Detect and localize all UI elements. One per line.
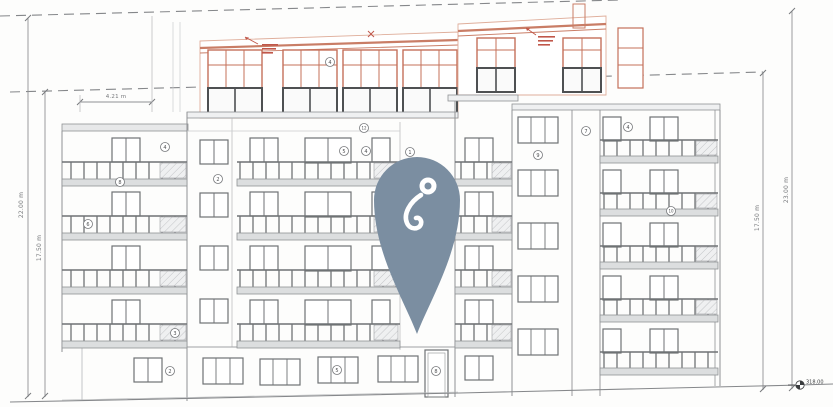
balcony-screen: [160, 163, 186, 178]
balcony-railing: [455, 270, 512, 294]
svg-text:9: 9: [536, 153, 539, 159]
window: [372, 300, 390, 324]
window: [650, 276, 678, 300]
stair-roof-window: [618, 28, 643, 88]
balcony-railing: [62, 270, 187, 294]
dimension-label: 17.50 m: [36, 235, 43, 261]
balcony-screen: [492, 271, 511, 286]
ref-marker: 8: [116, 178, 125, 187]
dimension-right-inner: 17.50 m: [754, 70, 766, 392]
ref-marker: 4: [161, 143, 170, 152]
window: [477, 38, 515, 68]
attic-level-left: [200, 31, 458, 118]
stair-tower: [455, 138, 512, 348]
balcony-screen: [374, 325, 398, 340]
svg-text:4: 4: [626, 125, 629, 131]
ref-marker: 4: [624, 123, 633, 132]
dimension-label: 23.00 m: [783, 177, 790, 203]
balcony-railing: [62, 216, 187, 240]
svg-text:318.00: 318.00: [806, 380, 824, 386]
window: [603, 276, 621, 300]
svg-text:1: 1: [408, 150, 411, 156]
balcony-screen: [696, 194, 717, 208]
window: [378, 356, 418, 382]
dimension-right-outer: 23.00 m: [783, 8, 795, 391]
ref-marker: 10: [667, 207, 676, 216]
window: [112, 138, 140, 162]
ref-marker: 5: [340, 147, 349, 156]
svg-text:8: 8: [118, 180, 121, 186]
window: [403, 50, 457, 88]
window: [283, 50, 337, 88]
window: [200, 140, 228, 164]
svg-text:2: 2: [168, 369, 171, 375]
window: [305, 300, 351, 325]
balcony-railing: [455, 324, 512, 348]
ref-marker: 2: [214, 175, 223, 184]
window: [650, 170, 678, 194]
ref-marker: 1: [406, 148, 415, 157]
window: [200, 299, 228, 323]
window: [477, 68, 515, 92]
balcony-railing: [600, 193, 718, 216]
window: [603, 170, 621, 194]
svg-text:3: 3: [173, 331, 176, 337]
window: [112, 300, 140, 324]
ref-marker: 12: [360, 124, 369, 133]
balcony-screen: [492, 325, 511, 340]
balcony-screen: [696, 141, 717, 155]
balcony-railing: [237, 162, 400, 186]
window: [343, 88, 397, 115]
window: [305, 246, 351, 271]
svg-text:10: 10: [668, 209, 674, 214]
balcony-railing: [600, 352, 718, 375]
balcony-screen: [160, 217, 186, 232]
balcony-railing: [600, 299, 718, 322]
balcony-railing: [237, 270, 400, 294]
attic-level-right: [458, 4, 643, 95]
window: [260, 359, 300, 385]
right-wing: [518, 117, 718, 375]
centre-window-column: [200, 140, 228, 323]
dimension-left-inner: 17.50 m: [36, 89, 48, 399]
window: [203, 358, 243, 384]
ref-marker: 7: [582, 127, 591, 136]
svg-text:6: 6: [86, 222, 89, 228]
balcony-screen: [696, 300, 717, 314]
ground-line: [10, 384, 833, 402]
window: [343, 50, 397, 88]
window: [518, 117, 558, 143]
elevation-drawing: 22.00 m 17.50 m 17.50 m 23.00 m 4.21 m: [0, 0, 833, 407]
left-wing: [62, 138, 187, 348]
window: [283, 88, 337, 115]
balcony-screen: [492, 163, 511, 178]
balcony-railing: [455, 162, 512, 186]
ref-marker: 9: [534, 151, 543, 160]
svg-text:5: 5: [335, 368, 338, 374]
window: [563, 38, 601, 68]
balcony-railing: [600, 140, 718, 163]
elevation-canvas: 22.00 m 17.50 m 17.50 m 23.00 m 4.21 m: [0, 0, 833, 407]
window: [518, 170, 558, 196]
svg-text:4: 4: [163, 145, 166, 151]
window: [250, 300, 278, 324]
window: [372, 138, 390, 162]
window: [250, 138, 278, 162]
window: [465, 300, 493, 324]
window: [518, 276, 558, 302]
svg-text:12: 12: [361, 126, 367, 131]
balcony-railing: [600, 246, 718, 269]
svg-text:8: 8: [434, 369, 437, 375]
svg-text:5: 5: [342, 149, 345, 155]
window: [208, 88, 262, 115]
level-benchmark: 318.00: [788, 380, 824, 390]
window: [465, 246, 493, 270]
ref-marker: 8: [432, 367, 441, 376]
ref-marker: 5: [333, 366, 342, 375]
window: [305, 192, 351, 217]
balcony-railing: [237, 324, 400, 348]
window: [208, 50, 262, 88]
window: [465, 138, 493, 162]
dimension-label: 22.00 m: [18, 192, 25, 218]
ref-marker: 4: [326, 58, 335, 67]
dimension-top-width: 4.21 m: [77, 16, 180, 112]
window: [650, 117, 678, 141]
ref-marker: 3: [171, 329, 180, 338]
centre-facade: [237, 138, 400, 348]
window: [403, 88, 457, 115]
window: [200, 246, 228, 270]
window: [465, 192, 493, 216]
window: [650, 329, 678, 353]
window: [563, 68, 601, 92]
dimension-label: 17.50 m: [754, 205, 761, 231]
window: [650, 223, 678, 247]
balcony-railing: [455, 216, 512, 240]
window: [200, 193, 228, 217]
window: [603, 329, 621, 353]
window: [134, 358, 162, 382]
dimension-label: 4.21 m: [106, 94, 127, 100]
window: [603, 117, 621, 141]
window: [465, 356, 493, 380]
svg-text:7: 7: [584, 129, 587, 135]
ref-marker: 6: [84, 220, 93, 229]
window: [250, 246, 278, 270]
window: [518, 223, 558, 249]
ref-marker: 2: [166, 367, 175, 376]
svg-text:4: 4: [328, 60, 331, 66]
balcony-screen: [492, 217, 511, 232]
dimension-left-outer: 22.00 m: [18, 15, 31, 399]
balcony-screen: [696, 247, 717, 261]
window: [112, 246, 140, 270]
window: [250, 192, 278, 216]
window: [518, 329, 558, 355]
balcony-railing: [62, 324, 187, 348]
ref-marker: 4: [362, 147, 371, 156]
svg-text:2: 2: [216, 177, 219, 183]
balcony-screen: [160, 271, 186, 286]
window: [112, 192, 140, 216]
window: [603, 223, 621, 247]
svg-text:4: 4: [364, 149, 367, 155]
